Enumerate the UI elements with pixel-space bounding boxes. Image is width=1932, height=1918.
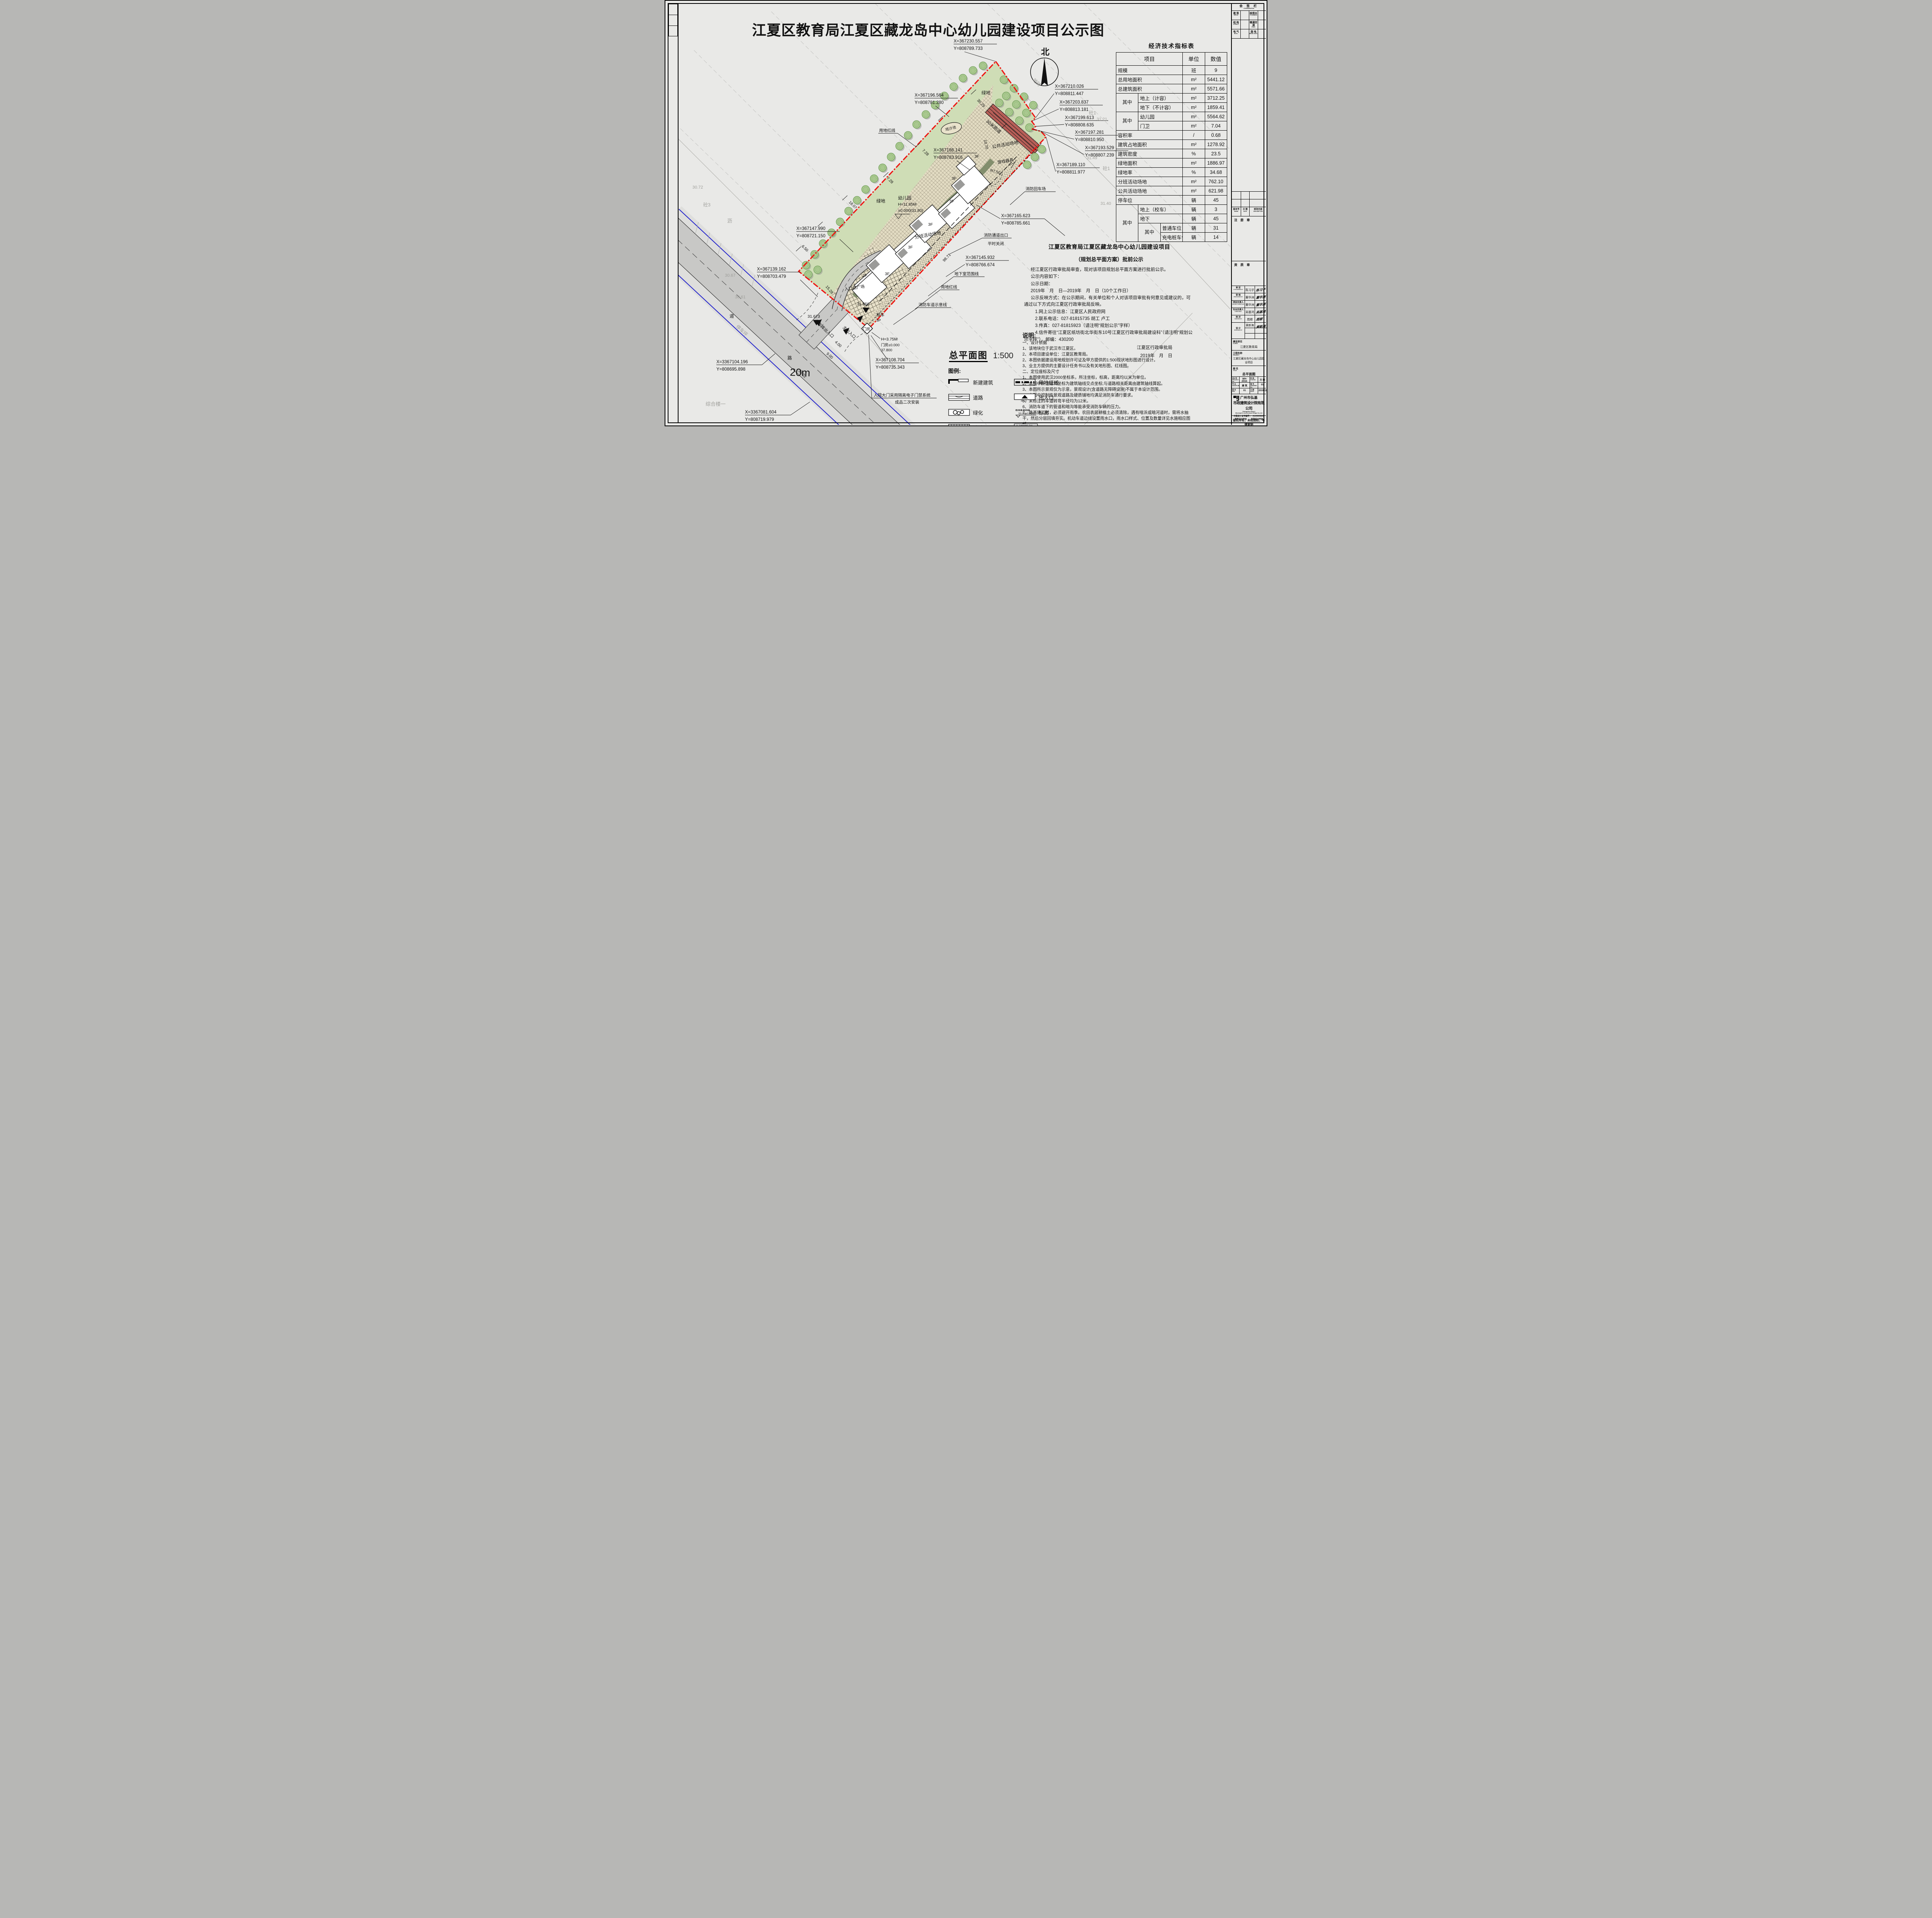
svg-text:98.71: 98.71	[942, 253, 952, 263]
coordination-header: 会 签 栏 COORDINATION	[1232, 4, 1266, 11]
row-label: 建筑占地面积	[1116, 140, 1183, 149]
row-unit: m²	[1183, 103, 1205, 112]
svg-text:X=367186.141: X=367186.141	[934, 148, 963, 153]
svg-text:Y=808781.280: Y=808781.280	[915, 100, 944, 105]
svg-text:Y=808785.661: Y=808785.661	[1001, 221, 1030, 226]
svg-text:Y=808813.181: Y=808813.181	[1060, 107, 1088, 112]
row-value: 621.98	[1205, 186, 1227, 196]
coordination-cell: 建 筑ARCHI.	[1232, 11, 1241, 20]
project-row: 工程名称PROJECT 江夏区藏龙岛中心幼儿园建设项目	[1232, 351, 1266, 366]
legend-label: 铺地	[973, 424, 983, 427]
coordination-row: 建 筑ARCHI. 给排水PLUMBING	[1232, 11, 1266, 20]
row-label: 绿地面积	[1116, 158, 1183, 168]
row-label: 停车位	[1116, 196, 1183, 205]
svg-text:X=367165.623: X=367165.623	[1001, 214, 1030, 218]
coordination-sign-cell	[1258, 29, 1267, 38]
road-icon	[948, 393, 970, 401]
col-header-unit: 单位	[1183, 53, 1205, 66]
indicator-table-block: 经济技术指标表 项目 单位 数值 规模班9 总用地面积m²5441.12 总建筑…	[1116, 42, 1227, 242]
row-value: 31	[1205, 223, 1227, 233]
notice-line: 2019年 月 日—2019年 月 日（10个工作日）	[1024, 288, 1195, 294]
svg-text:X=367230.557: X=367230.557	[954, 39, 983, 44]
notice-subtitle: （规划总平面方案）批前公示	[1024, 256, 1195, 264]
group-label: 其中	[1116, 205, 1138, 242]
row-value: 3	[1205, 205, 1227, 214]
row-unit: %	[1183, 149, 1205, 158]
row-unit: m²	[1183, 75, 1205, 84]
svg-text:30.67: 30.67	[725, 273, 736, 278]
svg-text:X=367193.529: X=367193.529	[1085, 146, 1114, 150]
row-unit: m²	[1183, 84, 1205, 94]
signature: 陈习子	[1255, 286, 1266, 293]
coordination-sign-cell	[1241, 20, 1249, 29]
signature: 董华洲	[1255, 301, 1266, 307]
coordination-title-en: COORDINATION	[1232, 8, 1266, 10]
svg-text:Y=808808.635: Y=808808.635	[1065, 123, 1094, 128]
svg-text:X=367139.162: X=367139.162	[757, 267, 786, 272]
svg-text:3P: 3P	[876, 318, 881, 323]
floor-label: 3F	[975, 154, 979, 159]
floor-label: 3F	[928, 222, 933, 227]
svg-text:X=367108.704: X=367108.704	[876, 358, 905, 362]
revision-row	[1232, 192, 1266, 199]
row-value: 1278.92	[1205, 140, 1227, 149]
svg-text:X=367199.613: X=367199.613	[1065, 116, 1094, 120]
row-unit: m²	[1183, 140, 1205, 149]
svg-text:砼3: 砼3	[703, 202, 711, 208]
indicator-table-title: 经济技术指标表	[1116, 42, 1227, 50]
legend-item-coord: X=3403295.741Y=39371322.902 坐标	[1014, 422, 1076, 426]
svg-text:门房±0.000: 门房±0.000	[881, 343, 900, 347]
coordination-sign-cell	[1258, 11, 1267, 20]
svg-text:校车: 校车	[876, 312, 884, 317]
coordination-cell: 弱 电WEAK ELEC.	[1249, 29, 1258, 38]
client-row: 建设单位CLIENT 江夏区教育局	[1232, 339, 1266, 351]
row-label: 地上（校车）	[1138, 205, 1183, 214]
notes-line: 一、设计依据	[1022, 340, 1196, 346]
svg-text:X=367197.281: X=367197.281	[1075, 130, 1104, 135]
plan-title: 总平面图	[949, 350, 988, 362]
plan-title-block: 总平面图1:500	[949, 348, 1014, 361]
svg-text:Y=808789.733: Y=808789.733	[954, 46, 983, 51]
row-value: 45	[1205, 196, 1227, 205]
row-value: 14	[1205, 233, 1227, 242]
row-label: 门卫	[1138, 121, 1183, 131]
svg-text:绿地: 绿地	[876, 198, 886, 204]
row-unit: m²	[1183, 112, 1205, 121]
svg-text:X=3403295.741: X=3403295.741	[1016, 425, 1033, 426]
svg-text:入院大门采用隔离电子门禁系统: 入院大门采用隔离电子门禁系统	[874, 393, 930, 398]
notes-line: 2、本项目建设单位：江夏区教育局。	[1022, 352, 1196, 357]
notice-line: 公示反映方式：在公示期间，有关单位和个人对该项目审批有何意见或建议的，可通过以下…	[1024, 295, 1195, 308]
row-label: 公共活动场地	[1116, 186, 1183, 196]
row-label: 地下	[1138, 214, 1183, 223]
coordination-cell: 电 气ELEC.	[1232, 29, 1241, 38]
sign-row-director: 项目负责人PROJECT DIRECTOR 董华洲 董华洲	[1232, 301, 1266, 308]
legend-label: 出入口	[1039, 394, 1054, 401]
revision-date: 日 期DATE	[1241, 207, 1250, 216]
svg-text:X=367189.110: X=367189.110	[1056, 163, 1085, 167]
notice-line: 3.传真：027-81815923（请注明“规划公示”字样）	[1024, 323, 1195, 329]
row-unit: 辆	[1183, 214, 1205, 223]
row-value: 5564.62	[1205, 112, 1227, 121]
coordination-sign-cell	[1241, 29, 1249, 38]
sign-row-checked: 校 对CHECKED BY 周顺 周顺	[1232, 315, 1266, 323]
svg-text:道: 道	[730, 313, 734, 319]
green-icon	[948, 408, 970, 416]
revision-row	[1232, 199, 1266, 207]
revision-desc: 修改内容DESCRIPTION	[1250, 207, 1267, 216]
row-unit: /	[1183, 131, 1205, 140]
sign-row-processed: 审 核PROCESSED BY 董华洲 董华洲	[1232, 293, 1266, 301]
svg-text:砼1: 砼1	[1103, 166, 1110, 171]
row-label: 幼儿园	[1138, 112, 1183, 121]
svg-text:地下室范围线: 地下室范围线	[954, 271, 979, 276]
svg-text:消防回车场: 消防回车场	[1026, 186, 1046, 191]
titleblock-blank-area	[1232, 39, 1266, 192]
legend-item-level: 绝对标高 相对标高50.00(±0.000) 标高	[1014, 407, 1076, 417]
svg-text:绝对标高 相对标高: 绝对标高 相对标高	[1015, 409, 1030, 412]
signature: 董华洲	[1255, 293, 1266, 300]
exit-icon: 出入口	[1014, 393, 1036, 401]
kg-name: 幼儿园	[898, 196, 912, 201]
row-value: 0.68	[1205, 131, 1227, 140]
legend: 图例: 新建建筑 用地红线 道路 出入口 出入口	[948, 367, 1076, 426]
svg-text:成品二次安装: 成品二次安装	[895, 400, 919, 405]
drawing-sheet: 30米跑道	[665, 0, 1267, 426]
company-logo-icon	[1233, 396, 1240, 401]
legend-label: 道路	[973, 394, 983, 401]
svg-text:Y=808721.150: Y=808721.150	[796, 234, 825, 238]
floor-label: 3F	[908, 245, 913, 250]
row-label: 地上（计容）	[1138, 94, 1183, 103]
notice-line: 公示内容如下：	[1024, 274, 1195, 280]
svg-text:出入口: 出入口	[1021, 400, 1027, 402]
sheet-title: 江夏区教育局江夏区藏龙岛中心幼儿园建设项目公示图	[745, 19, 1112, 39]
redline-icon	[1014, 378, 1036, 386]
svg-text:6.50: 6.50	[801, 244, 809, 253]
legend-item-green: 绿化	[948, 407, 1014, 417]
row-label: 总建筑面积	[1116, 84, 1183, 94]
svg-text:沥: 沥	[727, 218, 732, 224]
row-label: 分班活动场地	[1116, 177, 1183, 186]
row-value: 5571.66	[1205, 84, 1227, 94]
col-header-item: 项目	[1116, 53, 1183, 66]
legend-label: 绿化	[973, 409, 983, 416]
coordination-cell: 暖通空调HVAC	[1249, 20, 1258, 29]
sign-row-authorized: 审 定AUTHORIZED BY 陈习子 陈习子	[1232, 286, 1266, 293]
coordination-title: 会 签 栏	[1240, 4, 1258, 8]
row-value: 3712.25	[1205, 94, 1227, 103]
revision-header: 版本号MARK 日 期DATE 修改内容DESCRIPTION	[1232, 207, 1266, 216]
row-unit: m²	[1183, 177, 1205, 186]
svg-text:平时关闭: 平时关闭	[988, 241, 1004, 246]
svg-text:Y=808810.950: Y=808810.950	[1075, 138, 1104, 142]
notes-line: 1、该地块位于武汉市江夏区。	[1022, 346, 1196, 352]
svg-text:31.21: 31.21	[1097, 117, 1107, 122]
registration-stamp-area: 注 册 章	[1232, 216, 1266, 261]
svg-text:Y=808735.343: Y=808735.343	[876, 365, 905, 370]
row-unit: %	[1183, 168, 1205, 177]
svg-text:30.61: 30.61	[735, 295, 746, 300]
sign-row-designed: 设 计DESIGNED BY 黄新海黄新海	[1232, 323, 1266, 339]
coordination-sign-cell	[1258, 20, 1267, 29]
coordination-row: 电 气ELEC. 弱 电WEAK ELEC.	[1232, 29, 1266, 39]
row-unit: 班	[1183, 66, 1205, 75]
legend-label: 用地红线	[1039, 379, 1059, 386]
svg-text:门房: 门房	[863, 327, 870, 332]
svg-text:X=367145.932: X=367145.932	[966, 255, 995, 260]
design-company: 广州市弘基 市政建筑设计院有限公司 Guangzhou Hong ji Muni…	[1232, 394, 1266, 416]
row-value: 34.68	[1205, 168, 1227, 177]
svg-text:Y=808703.479: Y=808703.479	[757, 274, 786, 279]
signature: 吴基鸿	[1255, 308, 1266, 315]
svg-text:砼1: 砼1	[1089, 110, 1096, 116]
notice-line: 公示日期：	[1024, 281, 1195, 288]
row-unit: m²	[1183, 186, 1205, 196]
group-label: 其中	[1116, 94, 1138, 112]
legend-item-paving: 铺地	[948, 422, 1014, 426]
svg-text:X=3367081.604: X=3367081.604	[745, 410, 777, 415]
group-label: 其中	[1138, 223, 1160, 242]
meta-row: 设计号PROJECT No. WH-2018-069 阶 段STATUS 方 案	[1232, 377, 1266, 383]
svg-text:绿地: 绿地	[981, 90, 991, 95]
coord-icon: X=3403295.741Y=39371322.902	[1014, 424, 1036, 426]
svg-text:31.673: 31.673	[808, 314, 820, 319]
row-unit: 辆	[1183, 205, 1205, 214]
svg-text:Y=808783.916: Y=808783.916	[934, 155, 963, 160]
legend-title: 图例:	[948, 367, 1076, 375]
binding-edge-line	[678, 3, 679, 423]
legend-label: 标高	[1039, 409, 1049, 416]
svg-text:北: 北	[1041, 47, 1049, 57]
corner-box	[668, 4, 678, 36]
svg-text:用地红线: 用地红线	[879, 128, 895, 133]
row-value: 45	[1205, 214, 1227, 223]
legend-item-exit: 出入口 出入口	[1014, 392, 1076, 402]
svg-text:Y=808811.977: Y=808811.977	[1056, 170, 1085, 175]
row-value: 7.04	[1205, 121, 1227, 131]
row-value: 23.5	[1205, 149, 1227, 158]
svg-text:X=367203.837: X=367203.837	[1060, 100, 1088, 105]
row-label: 规模	[1116, 66, 1183, 75]
col-header-value: 数值	[1205, 53, 1227, 66]
svg-text:31.40: 31.40	[1100, 201, 1111, 206]
row-label: 地下（不计容）	[1138, 103, 1183, 112]
svg-text:地砖: 地砖	[1032, 77, 1043, 88]
row-unit: 辆	[1183, 223, 1205, 233]
notice-line: 经江夏区行政审批局审查，现对该项目规划总平面方案进行批前公示。	[1024, 267, 1195, 273]
row-label: 普通车位	[1160, 223, 1182, 233]
svg-text:X=367147.990: X=367147.990	[796, 226, 825, 231]
group-label: 其中	[1116, 112, 1138, 131]
notice-title: 江夏区教育局江夏区藏龙岛中心幼儿园建设项目	[1024, 243, 1195, 252]
meta-row: 专 业DISCIPLINE 建 筑 图 号DRAWING No. 01	[1232, 383, 1266, 388]
svg-text:消防通道出口: 消防通道出口	[984, 233, 1008, 238]
floor-label: 3F	[949, 199, 954, 204]
legend-label: 坐标	[1039, 424, 1049, 427]
notice-line: 1.网上公示信息：江夏区人民政府网	[1024, 309, 1195, 315]
svg-text:Y=808695.898: Y=808695.898	[716, 367, 745, 372]
svg-text:Y=808766.674: Y=808766.674	[966, 263, 995, 267]
row-label: 绿地率	[1116, 168, 1183, 177]
row-value: 9	[1205, 66, 1227, 75]
notice-line: 2.联系电话：027-81815735 胡工 卢工	[1024, 316, 1195, 322]
kg-height: H=11.85M	[898, 202, 917, 207]
sign-row-chief: 专业负责人CHIEF ENGL 吴基鸿 吴基鸿	[1232, 308, 1266, 315]
row-value: 1886.97	[1205, 158, 1227, 168]
legend-item-redline: 用地红线	[1014, 377, 1076, 387]
meta-row: 版 本REV. 01 日 期DATE 2019.11	[1232, 388, 1266, 394]
svg-text:X=367210.026: X=367210.026	[1055, 84, 1084, 89]
coordination-cell: 结 构STRUCT.	[1232, 20, 1241, 29]
floor-label: 2F	[862, 273, 867, 278]
kg-elev: ±0.000(31.80)	[898, 208, 923, 213]
svg-text:Y=808719.979: Y=808719.979	[745, 417, 774, 422]
signature: 周顺	[1255, 315, 1263, 322]
svg-text:31.650: 31.650	[857, 302, 869, 306]
svg-text:Y=808811.447: Y=808811.447	[1055, 92, 1083, 96]
notes-line: 2、本图依据建设用地规划许可证及甲方提供的1:500现状地形图进行设计。	[1022, 357, 1196, 363]
svg-text:37.800: 37.800	[881, 348, 892, 352]
new-building-icon	[948, 378, 970, 386]
row-label: 建筑密度	[1116, 149, 1183, 158]
svg-text:31.49: 31.49	[1087, 156, 1097, 160]
row-unit: m²	[1183, 94, 1205, 103]
row-label: 容积率	[1116, 131, 1183, 140]
drawing-title-row: 图 名TITLE 总平面图	[1232, 366, 1266, 377]
svg-text:H=3.75M: H=3.75M	[881, 337, 898, 342]
legend-label: 新建建筑	[973, 379, 993, 386]
coordination-sign-cell	[1241, 11, 1249, 20]
svg-text:用地红线: 用地红线	[941, 284, 957, 289]
row-value: 762.10	[1205, 177, 1227, 186]
svg-text:X=367196.564: X=367196.564	[915, 93, 944, 98]
svg-text:路: 路	[787, 355, 792, 361]
svg-text:4.00: 4.00	[834, 340, 842, 349]
svg-text:主出入口: 主出入口	[842, 325, 857, 340]
qualification-stamp-area: 资 质 章	[1232, 261, 1266, 286]
svg-text:综合楼一: 综合楼一	[706, 401, 726, 407]
revision-mark: 版本号MARK	[1232, 207, 1241, 216]
row-value: 1859.41	[1205, 103, 1227, 112]
row-unit: m²	[1183, 158, 1205, 168]
floor-label: 3F	[952, 176, 956, 181]
legend-item-new-building: 新建建筑	[948, 377, 1014, 387]
notes-heading: 说明:	[1022, 332, 1196, 340]
row-label: 总用地面积	[1116, 75, 1183, 84]
legend-item-road: 道路	[948, 392, 1014, 402]
svg-text:30.72: 30.72	[692, 185, 703, 190]
coordination-cell: 给排水PLUMBING	[1249, 11, 1258, 20]
paving-icon	[948, 424, 970, 426]
row-label: 充电桩车位	[1160, 233, 1182, 242]
row-value: 5441.12	[1205, 75, 1227, 84]
title-block: 会 签 栏 COORDINATION 建 筑ARCHI. 给排水PLUMBING…	[1231, 4, 1266, 425]
row-unit: m²	[1183, 121, 1205, 131]
floor-label: 3F	[885, 272, 889, 276]
level-icon: 绝对标高 相对标高50.00(±0.000)	[1014, 408, 1036, 416]
row-unit: 辆	[1183, 196, 1205, 205]
indicator-table: 项目 单位 数值 规模班9 总用地面积m²5441.12 总建筑面积m²5571…	[1116, 52, 1227, 242]
svg-text:X=3367104.196: X=3367104.196	[716, 360, 748, 364]
plan-scale: 1:500	[993, 351, 1014, 360]
coordination-row: 结 构STRUCT. 暖通空调HVAC	[1232, 20, 1266, 29]
svg-text:50.00(±0.000): 50.00(±0.000)	[1019, 412, 1034, 415]
row-unit: 辆	[1183, 233, 1205, 242]
svg-text:消防车道示意线: 消防车道示意线	[918, 302, 947, 307]
